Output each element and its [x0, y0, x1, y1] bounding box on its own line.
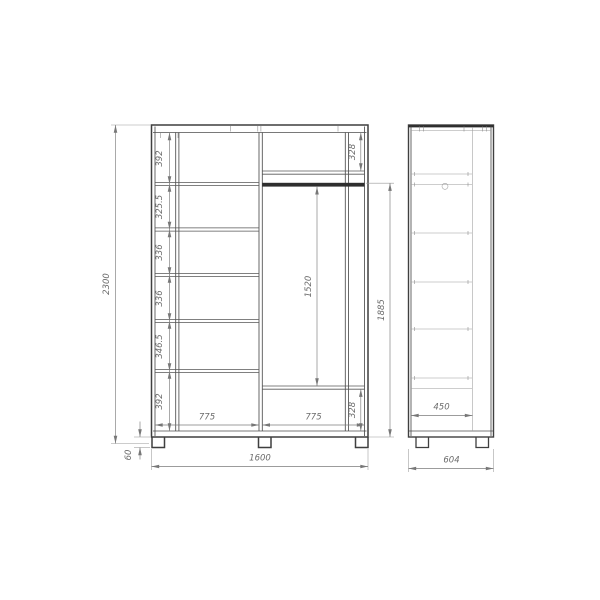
dim-label-shelf-6: 392: [155, 393, 165, 409]
side-leg-back: [476, 437, 489, 448]
dim-label-rod-height: 1885: [377, 299, 387, 321]
rod-bracket-hole: [442, 183, 448, 189]
dim-total-height: 2300: [102, 125, 151, 444]
dim-label-leg-height: 60: [124, 450, 134, 461]
side-legs: [416, 437, 489, 448]
dim-label-shelf-depth: 450: [433, 403, 449, 413]
dim-total-depth: 604: [409, 449, 494, 472]
dim-label-total-depth: 604: [443, 456, 459, 466]
dim-label-section-right: 775: [305, 413, 321, 423]
dim-label-shelf-4: 336: [155, 290, 165, 307]
front-leg-middle: [259, 437, 272, 448]
side-outer-panel: [409, 125, 494, 437]
dim-rod-clearance: 1520: [304, 187, 317, 386]
front-carcass: [152, 125, 369, 437]
front-view: 392 325.5 336 336 346.5 392 328 328 1520: [102, 125, 394, 470]
dim-section-left: 775: [155, 413, 259, 426]
dim-label-top-right: 328: [348, 143, 358, 160]
side-leg-front: [416, 437, 429, 448]
dim-label-section-left: 775: [199, 413, 215, 423]
dim-shelf-depth: 450: [411, 403, 473, 416]
hanging-rod: [262, 183, 364, 187]
front-outer-panel: [152, 125, 369, 437]
front-leg-left: [152, 437, 165, 448]
front-legs: [152, 437, 368, 448]
wardrobe-technical-drawing: 392 325.5 336 336 346.5 392 328 328 1520: [0, 0, 600, 600]
dim-total-width: 1600: [152, 449, 369, 470]
dim-label-bottom-right: 328: [348, 401, 358, 418]
dim-label-shelf-3: 336: [155, 244, 165, 261]
side-carcass: [409, 125, 494, 437]
dim-label-rod-clearance: 1520: [304, 276, 314, 298]
front-left-shelves: [155, 182, 259, 372]
dim-label-shelf-1: 392: [155, 150, 165, 166]
dim-label-shelf-2: 325.5: [155, 195, 165, 219]
drawing-page: 392 325.5 336 336 346.5 392 328 328 1520: [0, 0, 600, 600]
dim-rod-height: 1885: [366, 183, 394, 437]
front-fastener-ticks: [161, 126, 339, 138]
dim-label-total-height: 2300: [102, 273, 112, 295]
dim-top-right: 328: [348, 133, 361, 172]
dim-label-total-width: 1600: [249, 454, 271, 464]
dim-leg-height: 60: [124, 422, 150, 461]
dim-shelf-chain: 392 325.5 336 336 346.5 392: [155, 133, 170, 432]
side-shelf-lines: [411, 172, 472, 389]
dim-label-shelf-5: 346.5: [155, 334, 165, 358]
side-view: 450 604: [409, 125, 494, 472]
front-leg-right: [356, 437, 369, 448]
